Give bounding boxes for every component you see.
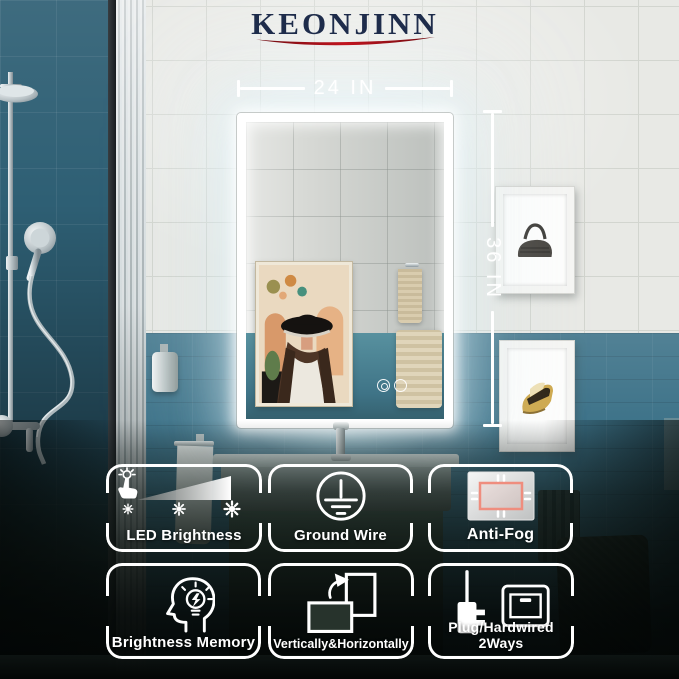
paper-holder <box>152 352 178 392</box>
brand-name: KEONJINN <box>150 6 540 42</box>
dimension-cap <box>450 80 453 97</box>
feature-label: Ground Wire <box>268 527 413 544</box>
brand-logo: KEONJINN <box>150 6 540 49</box>
height-dimension-label-wrap: 36 IN <box>461 227 524 311</box>
anti-fog-mirror-icon <box>466 470 536 522</box>
dimension-cap <box>483 424 502 427</box>
mirror-led-frame <box>237 113 453 428</box>
brightness-gradient-wedge <box>137 476 231 500</box>
width-dimension: 24 IN <box>237 78 453 98</box>
feature-badge-anti-fog: Anti-Fog <box>428 464 573 552</box>
feature-label: Vertically&Horizontally <box>268 637 414 651</box>
gold-iron-art <box>517 372 557 420</box>
brightness-memory-icon <box>153 569 215 633</box>
brightness-sun-icons <box>116 500 246 518</box>
dimension-line <box>491 113 494 227</box>
feature-badge-led-brightness: LED Brightness <box>106 464 262 552</box>
feature-badge-vertical-horizontal: Vertically&Horizontally <box>268 563 414 659</box>
feature-badge-ground-wire: Ground Wire <box>268 464 413 552</box>
width-dimension-label: 24 IN <box>314 77 377 100</box>
feature-label: Plug/Hardwired 2Ways <box>428 619 574 651</box>
feature-label: LED Brightness <box>106 527 262 544</box>
rotate-orientation-icon <box>293 569 389 635</box>
height-dimension: 36 IN <box>481 110 503 427</box>
ground-wire-icon <box>312 470 370 524</box>
height-dimension-label: 36 IN <box>481 237 504 300</box>
dimension-line <box>491 311 494 425</box>
feature-label: Brightness Memory <box>106 634 261 651</box>
feature-badge-plug-hardwired: Plug/Hardwired 2Ways <box>428 563 574 659</box>
product-image: 24 IN 36 IN KEONJINN <box>0 0 679 679</box>
feature-label: Anti-Fog <box>428 526 573 544</box>
led-mirror <box>237 113 453 428</box>
dimension-line <box>385 87 450 90</box>
feature-badge-brightness-memory: Brightness Memory <box>106 563 261 659</box>
shower-set <box>0 60 150 480</box>
dimension-line <box>240 87 305 90</box>
